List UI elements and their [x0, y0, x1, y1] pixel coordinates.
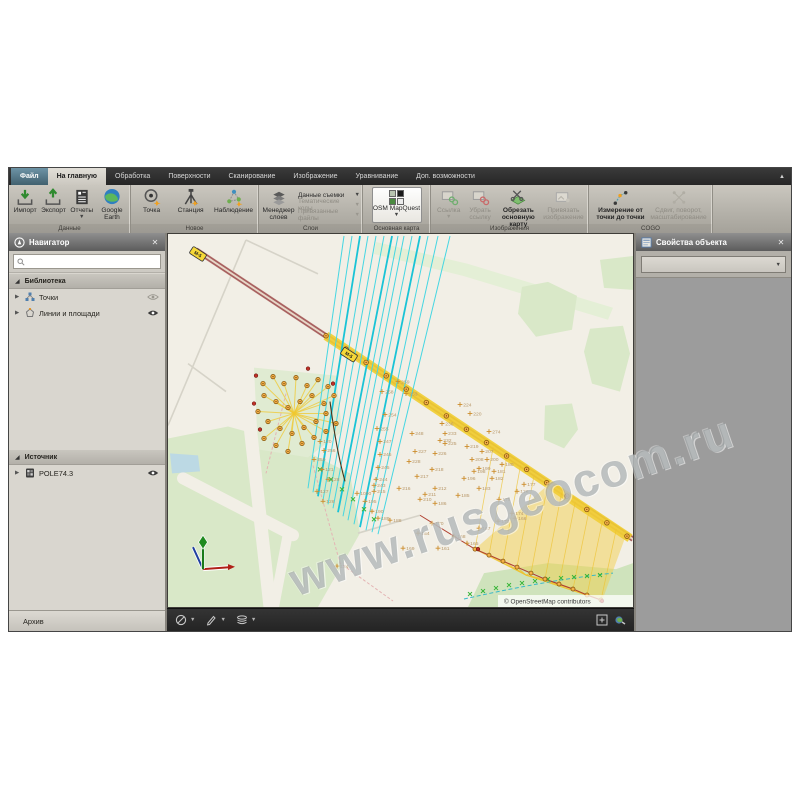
svg-text:258: 258: [385, 389, 394, 395]
object-selector-dropdown[interactable]: ▼: [641, 256, 786, 273]
group-label-new: Новое: [131, 224, 258, 233]
svg-text:190: 190: [375, 509, 384, 515]
osm-map[interactable]: 2592582532542552482472462452442431000215…: [168, 234, 633, 607]
svg-text:185: 185: [461, 493, 470, 499]
svg-text:169: 169: [406, 546, 415, 552]
zoom-extents-button[interactable]: [596, 614, 608, 626]
section-source[interactable]: ◢ Источник: [9, 449, 165, 465]
expand-arrow-icon[interactable]: ▶: [15, 294, 25, 300]
svg-text:255: 255: [380, 426, 389, 432]
ribbon-collapse-button[interactable]: ▲: [773, 168, 791, 185]
remove-link-button[interactable]: Убрать ссылку: [465, 187, 494, 222]
properties-form-icon: [641, 237, 652, 248]
data-file-icon: [25, 468, 35, 478]
close-icon[interactable]: ✕: [150, 238, 160, 247]
svg-text:216: 216: [402, 486, 411, 492]
polygon-icon: [25, 308, 35, 318]
svg-text:208: 208: [475, 457, 484, 463]
close-icon[interactable]: ✕: [776, 238, 786, 247]
svg-text:164: 164: [421, 531, 430, 537]
point-icon: [142, 188, 162, 207]
tab-file[interactable]: Файл: [11, 168, 48, 185]
group-label-images: Изображения: [431, 224, 588, 233]
search-icon: [17, 258, 25, 266]
map-toolbar: ▼ ▼ ▼: [167, 608, 634, 631]
tab-home[interactable]: На главную: [48, 168, 106, 185]
svg-text:186: 186: [438, 501, 447, 507]
layers-small-icon: [236, 614, 248, 626]
svg-text:188: 188: [393, 518, 402, 524]
svg-text:259: 259: [401, 379, 410, 385]
pencil-icon: [205, 614, 217, 626]
tab-processing[interactable]: Обработка: [106, 168, 159, 185]
main-area: Навигатор ✕ ◢ Библиотека ▶: [9, 233, 791, 631]
transform-icon: [669, 188, 689, 207]
svg-text:180: 180: [505, 462, 514, 468]
section-library[interactable]: ◢ Библиотека: [9, 273, 165, 289]
svg-text:210: 210: [423, 497, 432, 503]
navigator-panel: Навигатор ✕ ◢ Библиотека ▶: [9, 233, 167, 631]
svg-text:228: 228: [412, 459, 421, 465]
map-viewport[interactable]: 2592582532542552482472462452442431000215…: [167, 233, 634, 608]
svg-text:177: 177: [527, 482, 536, 488]
chevron-down-icon: ▼: [190, 617, 195, 623]
svg-text:173: 173: [501, 519, 510, 525]
ribbon: Импорт Экспорт Отчеты ▼: [9, 185, 791, 234]
chevron-down-icon: ▼: [355, 203, 360, 207]
image-unlink-icon: [470, 188, 490, 207]
svg-text:167: 167: [482, 526, 491, 532]
expand-arrow-icon[interactable]: ▶: [15, 470, 25, 476]
chevron-down-icon: ▼: [355, 213, 360, 217]
chevron-down-icon: ▼: [394, 213, 399, 217]
export-button[interactable]: Экспорт: [40, 187, 66, 215]
object-selector-row: ▼: [636, 251, 791, 278]
export-icon: [43, 188, 63, 207]
properties-title: Свойства объекта: [656, 238, 776, 247]
svg-text:236: 236: [445, 421, 454, 427]
svg-text:126: 126: [326, 499, 335, 505]
svg-text:219: 219: [470, 444, 479, 450]
svg-text:176: 176: [520, 489, 529, 495]
tab-scanning[interactable]: Сканирование: [219, 168, 284, 185]
svg-text:220: 220: [473, 411, 482, 417]
ribbon-group-cogo: Измерение от точки до точки Сдвиг, повор…: [589, 185, 713, 233]
points-node-icon: [25, 292, 35, 302]
svg-text:247: 247: [383, 439, 392, 445]
ribbon-tab-bar: Файл На главную Обработка Поверхности Ск…: [9, 168, 791, 185]
svg-text:121: 121: [325, 467, 334, 473]
svg-text:183: 183: [482, 486, 491, 492]
navigator-title: Навигатор: [29, 238, 150, 247]
svg-text:200: 200: [490, 457, 499, 463]
svg-text:248: 248: [415, 431, 424, 437]
svg-text:134: 134: [340, 564, 349, 570]
svg-text:182: 182: [495, 476, 504, 482]
layers-icon: [269, 188, 289, 207]
group-label-data: Данные: [9, 224, 130, 233]
map-column: 2592582532542552482472462452442431000215…: [167, 233, 634, 631]
chevron-down-icon: ▼: [776, 263, 781, 267]
point-to-point-measure-button[interactable]: Измерение от точки до точки: [594, 187, 648, 222]
snap-toggle-button[interactable]: ▼: [175, 614, 195, 626]
measure-path-icon: [611, 188, 631, 207]
station-button[interactable]: Станция: [171, 187, 210, 215]
import-icon: [15, 188, 35, 207]
tripod-icon: [181, 188, 201, 207]
svg-text:166: 166: [518, 516, 527, 522]
tree-item-lines-areas[interactable]: ▶ Линии и площади: [9, 305, 165, 321]
ribbon-group-layers: Менеджер слоев Данные съемки ▼ Тематичес…: [259, 185, 363, 233]
osm-mapquest-button[interactable]: OSM MapQuest ▼: [372, 187, 422, 223]
svg-text:127: 127: [320, 489, 329, 495]
navigator-title-bar: Навигатор ✕: [9, 233, 165, 251]
svg-text:© OpenStreetMap contributors: © OpenStreetMap contributors: [504, 598, 591, 606]
tab-bar-spacer: [484, 168, 773, 185]
svg-text:170: 170: [435, 521, 444, 527]
group-label-cogo: COGO: [589, 224, 712, 233]
navigator-search-row: [9, 251, 165, 273]
ribbon-group-basemap: OSM MapQuest ▼ Основная карта: [363, 185, 431, 233]
tree-item-points[interactable]: ▶ Точки: [9, 289, 165, 305]
layers-tool-button[interactable]: ▼: [236, 614, 256, 626]
visibility-eye-icon[interactable]: [147, 293, 159, 301]
application-window: Файл На главную Обработка Поверхности Ск…: [8, 167, 792, 632]
chevron-down-icon: ▼: [355, 193, 360, 197]
expand-arrow-icon[interactable]: ▶: [15, 310, 25, 316]
group-label-layers: Слои: [259, 224, 362, 233]
svg-text:181: 181: [497, 469, 506, 475]
ribbon-group-new: Точка Станция Наблюдение Новое: [131, 185, 259, 233]
svg-text:246: 246: [383, 452, 392, 458]
map-toolbar-right: [590, 614, 626, 626]
linked-files-dropdown[interactable]: Привязанные файлы ▼: [298, 210, 360, 220]
google-earth-button[interactable]: Google Earth: [97, 187, 127, 222]
chevron-down-icon: ▼: [220, 617, 225, 623]
svg-text:120: 120: [323, 439, 332, 445]
archive-bar[interactable]: Архив: [9, 610, 165, 631]
visibility-eye-icon[interactable]: [147, 309, 159, 317]
svg-text:226: 226: [438, 451, 447, 457]
import-button[interactable]: Импорт: [12, 187, 38, 215]
svg-text:128: 128: [331, 477, 340, 483]
ribbon-group-images: Ссылка ▼ Убрать ссылку Обрезать осн: [431, 185, 589, 233]
collapse-triangle-icon: ◢: [15, 454, 20, 461]
svg-text:224: 224: [463, 402, 472, 408]
observation-button[interactable]: Наблюдение: [212, 187, 255, 215]
svg-text:256: 256: [327, 448, 336, 454]
shift-rotate-scale-button[interactable]: Сдвиг, поворот, масштабирование: [650, 187, 708, 222]
search-input[interactable]: [13, 254, 161, 269]
map-tiles-icon: [389, 190, 404, 205]
group-label-basemap: Основная карта: [363, 224, 430, 233]
tree-item-pole-file[interactable]: ▶ POLE74.3: [9, 465, 165, 481]
svg-text:212: 212: [438, 486, 447, 492]
snap-icon: [175, 614, 187, 626]
reports-button[interactable]: Отчеты ▼: [69, 187, 95, 219]
svg-text:165: 165: [470, 541, 479, 547]
source-section: ◢ Источник ▶ POLE74.3: [9, 449, 165, 481]
georeference-image-button[interactable]: Привязать изображение: [542, 187, 585, 222]
collapse-triangle-icon: ◢: [15, 278, 20, 285]
link-button[interactable]: Ссылка ▼: [434, 187, 463, 219]
point-button[interactable]: Точка: [134, 187, 169, 215]
chevron-down-icon: ▼: [79, 215, 84, 219]
svg-text:215: 215: [377, 489, 386, 495]
compass-icon: [14, 237, 25, 248]
image-link-icon: [439, 188, 459, 207]
layer-dropdown-rows: Данные съемки ▼ Тематические коды ▼ Прив…: [298, 187, 360, 220]
svg-text:189: 189: [381, 516, 390, 522]
screenshot-button[interactable]: [614, 614, 626, 626]
properties-panel: Свойства объекта ✕ ▼: [634, 233, 791, 631]
svg-text:233: 233: [448, 431, 457, 437]
svg-text:198: 198: [477, 469, 486, 475]
svg-text:168: 168: [457, 534, 466, 540]
svg-text:254: 254: [388, 412, 397, 418]
svg-text:245: 245: [381, 465, 390, 471]
svg-text:207: 207: [485, 449, 494, 455]
svg-text:175: 175: [502, 497, 511, 503]
globe-icon: [102, 188, 122, 207]
report-icon: [72, 188, 92, 207]
network-nodes-icon: [224, 188, 244, 207]
visibility-eye-icon[interactable]: [147, 469, 159, 477]
image-pin-icon: [553, 188, 573, 207]
layer-manager-button[interactable]: Менеджер слоев: [262, 187, 295, 222]
svg-text:227: 227: [418, 449, 427, 455]
properties-title-bar: Свойства объекта ✕: [636, 233, 791, 251]
tab-surfaces[interactable]: Поверхности: [159, 168, 219, 185]
chevron-down-icon: ▼: [251, 617, 256, 623]
svg-text:225: 225: [448, 441, 457, 447]
svg-text:161: 161: [441, 546, 450, 552]
svg-text:218: 218: [435, 467, 444, 473]
draw-tool-button[interactable]: ▼: [205, 614, 225, 626]
tab-image[interactable]: Изображение: [284, 168, 346, 185]
chevron-down-icon: ▼: [446, 215, 451, 219]
scissors-icon: [508, 188, 528, 207]
tab-extra-features[interactable]: Доп. возможности: [407, 168, 484, 185]
crop-basemap-button[interactable]: Обрезать основную карту: [497, 187, 540, 229]
ribbon-empty-space: [713, 185, 791, 233]
svg-text:250: 250: [317, 457, 326, 463]
svg-text:253: 253: [409, 391, 418, 397]
svg-text:274: 274: [492, 429, 501, 435]
svg-text:195: 195: [368, 499, 377, 505]
tab-adjustment[interactable]: Уравнивание: [347, 168, 408, 185]
svg-text:196: 196: [467, 476, 476, 482]
svg-text:1000: 1000: [360, 491, 371, 497]
ribbon-group-data: Импорт Экспорт Отчеты ▼: [9, 185, 131, 233]
svg-text:217: 217: [420, 474, 429, 480]
